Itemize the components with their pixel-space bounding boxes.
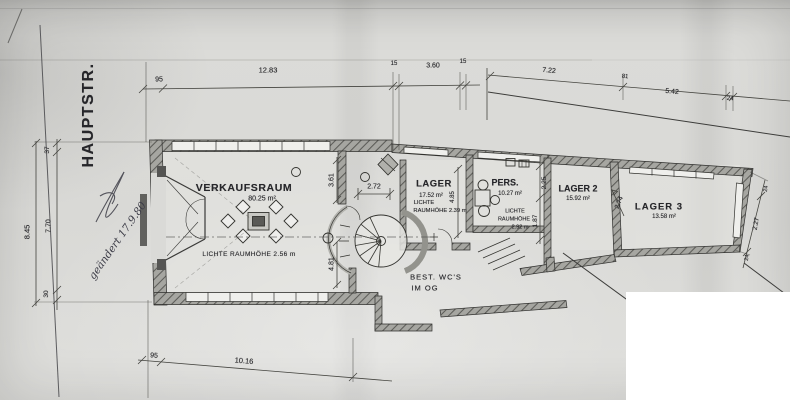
wc-note-line2: IM OG [411,284,438,292]
room-area-verkaufsraum: 80.25 m² [248,196,276,203]
dim-lager3-24b: 24 [745,255,751,262]
dim-vr-361: 3.61 [329,173,336,187]
dim-street-722: 7.22 [542,67,556,75]
door-arc [346,206,360,220]
room-area-pers: 10.27 m² [498,191,522,197]
room-height-verkaufsraum: LICHTE RAUMHÖHE 2.56 m [202,252,295,259]
dim-street-24: 24 [726,96,733,103]
room-area-lager: 17.52 m² [419,193,443,199]
room-height-pers-l2: RAUMHÖHE [498,217,530,223]
corridor-steps [478,238,525,270]
dim-left-37: 37 [45,146,52,153]
room-label-lager: LAGER [416,179,452,189]
room-height-lager-l2: RAUMHÖHE 2.39 m [413,209,466,215]
handwritten-signature [96,172,124,222]
dim-top-1283: 12.83 [259,66,278,74]
dim-left-770: 7.70 [46,219,53,233]
room-height-pers-l1: LICHTE [505,209,525,215]
dim-bottom-1016: 10.16 [234,357,253,366]
white-patch [626,292,790,400]
street-label: HAUPTSTR. [81,62,97,167]
room-area-lager3: 13.58 m² [652,214,676,220]
dim-pers-225: 2.25 [542,177,549,190]
dim-top-15b: 15 [460,59,467,65]
room-height-pers-l3: 2.92 m [512,225,529,231]
room-height-lager-l1: LICHTE [414,201,435,207]
dim-left-845: 8.45 [23,225,31,240]
room-label-lager2: LAGER 2 [558,185,597,194]
scanned-floor-plan: HAUPTSTR. geändert 17.9.80 VERKAUFSRAUM … [0,0,790,400]
dim-bottom-95: 95 [150,352,158,360]
dim-lager3-24a: 24 [764,186,770,193]
dim-stair-272: 2.72 [367,184,381,191]
dim-lager-depth: 4.85 [450,191,456,203]
wc-note-line1: BEST. WC'S [410,273,462,281]
room-label-lager3: LAGER 3 [635,202,683,212]
dim-pers-187: 1.87 [533,215,540,228]
plan-linework [0,0,790,400]
dim-vr-481: 4.81 [329,257,336,271]
room-label-pers: PERS. [491,179,518,188]
dim-top-360: 3.60 [426,63,440,70]
room-label-verkaufsraum: VERKAUFSRAUM [196,183,292,194]
dim-street-542: 5.42 [665,88,679,96]
dim-top-15a: 15 [391,61,398,67]
dim-left-30: 30 [44,290,51,297]
room-area-lager2: 15.92 m² [566,196,590,202]
dim-top-95: 95 [155,77,163,84]
dim-street-81: 81 [621,74,628,81]
